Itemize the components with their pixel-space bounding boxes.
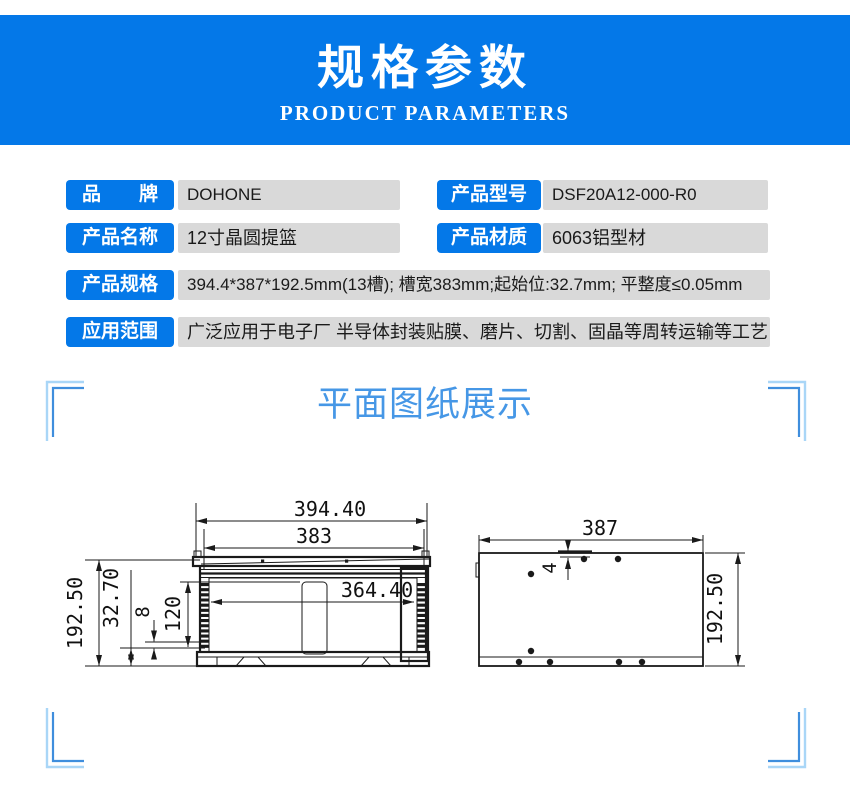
- dim-front-slot-depth: 120: [161, 596, 185, 632]
- page-subtitle: PRODUCT PARAMETERS: [0, 103, 850, 124]
- technical-drawings: 394.40 383: [0, 485, 850, 700]
- dim-side-height: 192.50: [703, 573, 727, 645]
- material-value: 6063铝型材: [543, 223, 768, 253]
- dim-front-overall-width: 394.40: [294, 497, 366, 521]
- dim-side-width: 387: [582, 516, 618, 540]
- side-view-drawing: 387 192.50 4: [476, 516, 745, 666]
- application-value: 广泛应用于电子厂 半导体封装贴膜、磨片、切割、固晶等周转运输等工艺: [178, 317, 770, 347]
- product-name-value: 12寸晶圆提篮: [178, 223, 400, 253]
- corner-bracket-top-left: [44, 379, 86, 443]
- application-label: 应用范围: [66, 317, 174, 347]
- dim-front-inner-width: 364.40: [341, 578, 413, 602]
- banner: 规格参数 PRODUCT PARAMETERS: [0, 15, 850, 145]
- spec-value: 394.4*387*192.5mm(13槽); 槽宽383mm;起始位:32.7…: [178, 270, 770, 300]
- product-parameters-page: 规格参数 PRODUCT PARAMETERS 品 牌 DOHONE 产品型号 …: [0, 0, 850, 788]
- brand-label: 品 牌: [66, 180, 174, 210]
- front-view-drawing: 394.40 383: [63, 497, 430, 666]
- product-name-label: 产品名称: [66, 223, 174, 253]
- corner-bracket-bottom-left: [44, 706, 86, 770]
- dim-front-top-width: 383: [296, 524, 332, 548]
- dim-front-slot-pitch: 8: [132, 606, 154, 617]
- model-value: DSF20A12-000-R0: [543, 180, 768, 210]
- corner-bracket-bottom-right: [766, 706, 808, 770]
- material-label: 产品材质: [437, 223, 541, 253]
- dim-side-top-offset: 4: [539, 562, 561, 573]
- spec-label: 产品规格: [66, 270, 174, 300]
- page-title: 规格参数: [0, 15, 850, 93]
- corner-bracket-top-right: [766, 379, 808, 443]
- model-label: 产品型号: [437, 180, 541, 210]
- drawing-section-title: 平面图纸展示: [0, 376, 850, 427]
- dim-front-overall-height: 192.50: [63, 577, 87, 649]
- dim-front-start-position: 32.70: [99, 568, 123, 628]
- brand-value: DOHONE: [178, 180, 400, 210]
